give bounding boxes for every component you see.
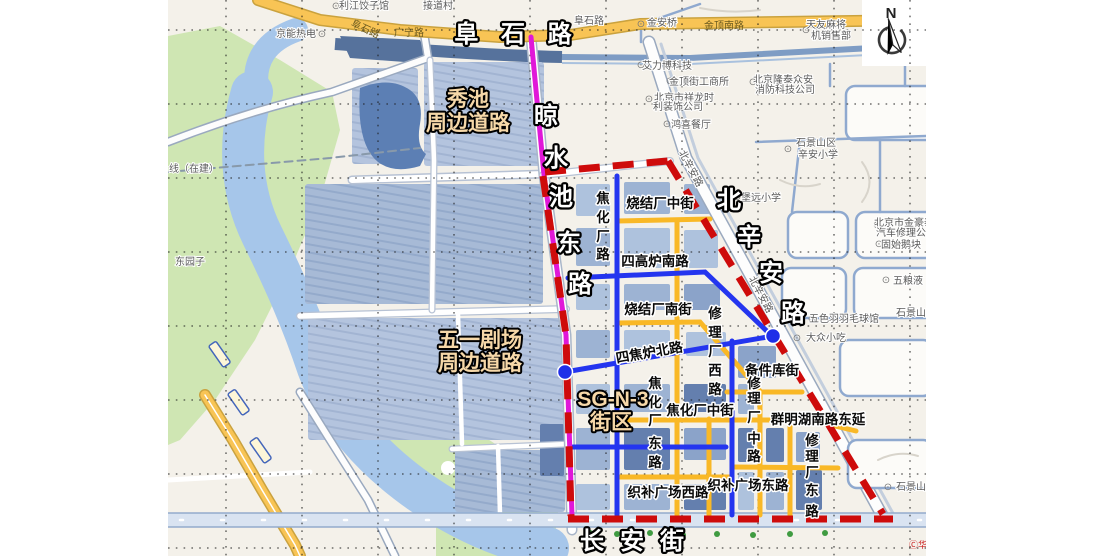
svg-text:线（在建）: 线（在建） bbox=[169, 162, 219, 175]
poi-xinan-school-line1: 石景山区 bbox=[796, 137, 836, 149]
map-canvas[interactable]: N bbox=[0, 0, 1096, 556]
annotation-wuyi-theater-line2: 周边道路 bbox=[438, 351, 523, 375]
svg-text:SG-N-3: SG-N-3 bbox=[577, 388, 648, 411]
svg-text:石景山: 石景山 bbox=[896, 481, 926, 493]
poi-xinan-school-line2: 辛安小学 bbox=[798, 148, 838, 161]
svg-text:池: 池 bbox=[549, 184, 573, 211]
svg-text:厂: 厂 bbox=[747, 410, 761, 425]
poi-tianyou-majiang-line1: 天友麻将 bbox=[806, 18, 846, 31]
svg-text:东园子: 东园子 bbox=[175, 255, 205, 268]
road-label-jiaohuachang-east-road: 焦化厂东路 bbox=[647, 375, 662, 470]
poi-hongxi-restaurant: 鸿喜餐厅 bbox=[671, 118, 711, 131]
annotation-sg-n-3: SG-N-3 bbox=[577, 388, 648, 411]
annotation-xiuchi-line2: 周边道路 bbox=[426, 111, 511, 135]
svg-text:周边道路: 周边道路 bbox=[438, 351, 523, 375]
poi-icon-school-1: ⊙ bbox=[784, 144, 792, 155]
poi-gushi-ekuai: 固始鹅块 bbox=[881, 238, 921, 251]
svg-text:烧结厂南街: 烧结厂南街 bbox=[624, 301, 692, 317]
svg-text:接道村: 接道村 bbox=[423, 0, 453, 12]
compass: N bbox=[862, 0, 926, 66]
svg-text:Ⓒ华: Ⓒ华 bbox=[909, 539, 927, 550]
svg-text:焦化厂中街: 焦化厂中街 bbox=[665, 402, 734, 418]
poi-dongyuanzi: 东园子 bbox=[175, 255, 205, 268]
poi-jinanqiao: 金安桥 bbox=[647, 16, 677, 29]
svg-text:路: 路 bbox=[568, 270, 593, 298]
svg-text:周边道路: 周边道路 bbox=[426, 111, 511, 135]
road-label-zhibu-square-east-road: 织补广场东路 bbox=[708, 477, 789, 493]
poi-wuliangye: 五粮液 bbox=[893, 274, 923, 287]
svg-text:化: 化 bbox=[596, 209, 610, 225]
svg-text:金顶街工商所: 金顶街工商所 bbox=[669, 75, 729, 88]
poi-jingneng-thermal: 京能热电 bbox=[276, 27, 316, 40]
svg-text:西: 西 bbox=[708, 363, 722, 378]
svg-text:厂: 厂 bbox=[596, 229, 610, 244]
svg-text:汽车修理公司: 汽车修理公司 bbox=[876, 226, 936, 239]
annotation-sg-n-3-block: 街区 bbox=[589, 410, 632, 434]
svg-text:⊙: ⊙ bbox=[318, 29, 326, 40]
svg-text:辛: 辛 bbox=[737, 223, 761, 251]
poi-jiedaocun: 接道村 bbox=[423, 0, 453, 12]
map-viewport[interactable]: N bbox=[0, 0, 1096, 556]
svg-text:鸿喜餐厅: 鸿喜餐厅 bbox=[671, 118, 711, 131]
poi-icon-metro: ⊙ bbox=[637, 19, 645, 30]
annotation-changan-street: 长安街 bbox=[580, 527, 700, 555]
svg-text:修: 修 bbox=[804, 432, 819, 448]
annotation-xiuchi-line1: 秀池 bbox=[446, 88, 489, 111]
svg-text:东: 东 bbox=[805, 482, 819, 498]
svg-text:晾: 晾 bbox=[534, 102, 558, 130]
poi-jindingjie-gongshangsuo: 金顶街工商所 bbox=[669, 75, 729, 88]
svg-text:大众小吃: 大众小吃 bbox=[806, 331, 846, 344]
svg-text:化: 化 bbox=[648, 394, 662, 410]
svg-text:金安桥: 金安桥 bbox=[647, 16, 677, 29]
svg-text:⊙: ⊙ bbox=[663, 119, 671, 130]
road-label-xiulichang-west-road: 修理厂西路 bbox=[707, 305, 722, 397]
svg-text:秀池: 秀池 bbox=[446, 88, 489, 111]
road-label-zhibu-square-west-road: 织补广场西路 bbox=[628, 484, 709, 500]
poi-xianglong-line2: 利装饰公司 bbox=[653, 100, 703, 113]
annotation-wuyi-theater-line1: 五一剧场 bbox=[438, 329, 522, 352]
poi-wuseyu-badminton: 五色羽羽毛球馆 bbox=[809, 312, 879, 325]
svg-text:⊙: ⊙ bbox=[784, 144, 792, 155]
svg-text:中: 中 bbox=[747, 430, 761, 446]
svg-text:京能热电: 京能热电 bbox=[276, 27, 316, 40]
poi-icon-generic-6: ⊙ bbox=[645, 94, 653, 105]
svg-text:广宁路: 广宁路 bbox=[394, 26, 424, 39]
road-label-shaojiechang-middle-st: 烧结厂中街 bbox=[626, 195, 694, 211]
svg-text:⊙: ⊙ bbox=[645, 94, 653, 105]
svg-text:东: 东 bbox=[557, 229, 581, 257]
svg-text:⊙: ⊙ bbox=[884, 482, 892, 493]
svg-text:艾力博科技: 艾力博科技 bbox=[642, 59, 692, 72]
svg-text:金顶南路: 金顶南路 bbox=[704, 19, 744, 32]
svg-text:东: 东 bbox=[648, 435, 662, 451]
poi-icon-generic-10: ⊙ bbox=[793, 333, 801, 344]
svg-text:路: 路 bbox=[805, 503, 819, 519]
poi-lijiang-dumplings: 利江饺子馆 bbox=[339, 0, 389, 12]
svg-text:北: 北 bbox=[717, 187, 741, 214]
svg-text:理: 理 bbox=[708, 325, 722, 340]
svg-text:织补广场东路: 织补广场东路 bbox=[708, 477, 789, 493]
svg-text:焦: 焦 bbox=[647, 375, 662, 391]
road-label-guangning: 广宁路 bbox=[394, 26, 424, 39]
svg-text:⊙: ⊙ bbox=[793, 333, 801, 344]
svg-text:水: 水 bbox=[544, 145, 569, 172]
poi-dazhong-snacks: 大众小吃 bbox=[806, 331, 846, 344]
svg-text:长安街: 长安街 bbox=[580, 527, 700, 555]
poi-shijingshan-2: 石景山 bbox=[896, 481, 926, 493]
svg-text:⊙: ⊙ bbox=[882, 275, 890, 286]
svg-text:理: 理 bbox=[747, 391, 761, 406]
svg-text:机销售部: 机销售部 bbox=[811, 29, 851, 42]
svg-text:群明湖南路东延: 群明湖南路东延 bbox=[770, 411, 866, 427]
svg-text:路: 路 bbox=[648, 454, 662, 470]
poi-ailibo-tech: 艾力博科技 bbox=[642, 59, 692, 72]
svg-text:天友麻将: 天友麻将 bbox=[806, 18, 846, 31]
svg-text:消防科技公司: 消防科技公司 bbox=[755, 83, 815, 96]
svg-text:堡远小学: 堡远小学 bbox=[741, 191, 781, 204]
svg-text:路: 路 bbox=[781, 299, 806, 327]
annotation-fushi-road: 阜 石 路 bbox=[454, 20, 579, 48]
poi-shijingshan-1: 石景山 bbox=[896, 307, 926, 319]
svg-text:⊙: ⊙ bbox=[637, 19, 645, 30]
svg-text:厂: 厂 bbox=[648, 413, 662, 428]
svg-text:修: 修 bbox=[707, 305, 722, 321]
svg-text:路: 路 bbox=[747, 448, 761, 464]
svg-text:街区: 街区 bbox=[589, 410, 632, 434]
road-label-jinding-south: 金顶南路 bbox=[704, 19, 744, 32]
poi-longtai-line2: 消防科技公司 bbox=[755, 83, 815, 96]
svg-text:厂: 厂 bbox=[805, 465, 819, 480]
road-label-xiulichang-east-road: 修理厂东路 bbox=[804, 432, 819, 519]
compass-north-label: N bbox=[886, 5, 897, 22]
road-label-xiulichang-middle-road: 修理厂中路 bbox=[746, 375, 761, 464]
svg-text:利江饺子馆: 利江饺子馆 bbox=[339, 0, 389, 12]
svg-text:阜 石 路: 阜 石 路 bbox=[454, 20, 579, 48]
road-label-qunminghu-south-road-ext: 群明湖南路东延 bbox=[770, 411, 866, 427]
svg-text:织补广场西路: 织补广场西路 bbox=[628, 484, 709, 500]
road-label-shaojiechang-south-st: 烧结厂南街 bbox=[624, 301, 692, 317]
poi-baoyuan-school: 堡远小学 bbox=[741, 191, 781, 204]
svg-text:五一剧场: 五一剧场 bbox=[438, 329, 522, 352]
svg-text:修: 修 bbox=[746, 375, 761, 391]
poi-icon-mountain: ⊙ bbox=[884, 482, 892, 493]
svg-text:石景山: 石景山 bbox=[896, 307, 926, 319]
svg-text:石景山区: 石景山区 bbox=[796, 137, 836, 149]
poi-jinhaotai-line2: 汽车修理公司 bbox=[876, 226, 936, 239]
svg-text:烧结厂中街: 烧结厂中街 bbox=[626, 195, 694, 211]
road-label-sigaolu-south-road: 四高炉南路 bbox=[621, 253, 689, 269]
svg-text:路: 路 bbox=[708, 381, 722, 397]
poi-tianyou-majiang-line2: 机销售部 bbox=[811, 29, 851, 42]
svg-text:辛安小学: 辛安小学 bbox=[798, 148, 838, 161]
svg-text:利装饰公司: 利装饰公司 bbox=[653, 100, 703, 113]
svg-text:固始鹅块: 固始鹅块 bbox=[881, 238, 921, 251]
svg-text:厂: 厂 bbox=[708, 344, 722, 359]
road-label-jiaohuachang-middle-st: 焦化厂中街 bbox=[665, 402, 734, 418]
svg-text:理: 理 bbox=[805, 449, 819, 464]
poi-icon-food-1: ⊙ bbox=[663, 119, 671, 130]
svg-text:路: 路 bbox=[596, 246, 610, 262]
svg-text:四高炉南路: 四高炉南路 bbox=[621, 253, 689, 269]
svg-text:焦: 焦 bbox=[595, 190, 610, 206]
poi-line-under-construction: 线（在建） bbox=[169, 162, 219, 175]
poi-icon-generic-1: ⊙ bbox=[318, 29, 326, 40]
svg-text:五粮液: 五粮液 bbox=[893, 274, 923, 287]
poi-icon-generic-8: ⊙ bbox=[882, 275, 890, 286]
svg-text:五色羽羽毛球馆: 五色羽羽毛球馆 bbox=[809, 312, 879, 325]
svg-text:安: 安 bbox=[759, 259, 783, 287]
copyright-mark: Ⓒ华 bbox=[909, 539, 927, 550]
